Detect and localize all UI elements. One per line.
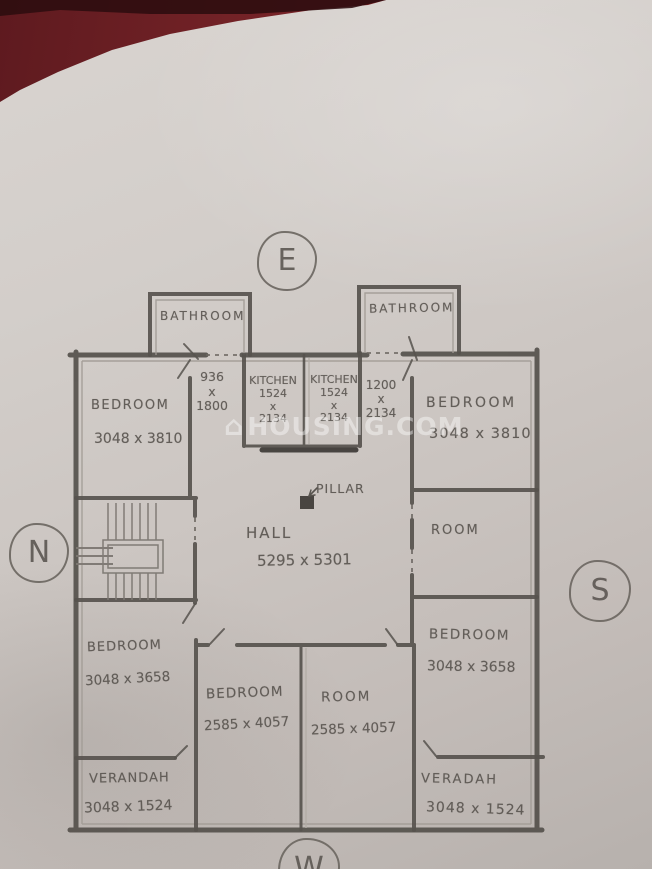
compass-east-letter: E: [278, 246, 297, 276]
passage-right-dims: 1200 x 2134: [358, 379, 404, 421]
room-label-bedroom-bottom-left: BEDROOM: [87, 638, 162, 656]
room-label-bathroom-right: BATHROOM: [369, 300, 455, 315]
kitchen-right-depth: 2134: [320, 412, 348, 425]
kitchen-left-width: 1524: [259, 388, 287, 401]
pillar-symbol: [300, 488, 317, 509]
kitchen-right-width: 1524: [320, 387, 348, 400]
room-label-bedroom-top-left: BEDROOM: [91, 398, 169, 413]
kitchen-left-name: KITCHEN: [249, 375, 297, 388]
room-dims-verandah-left: 3048 x 1524: [84, 797, 173, 816]
room-label-verandah-right: VERADAH: [421, 771, 498, 787]
room-dims-bedroom-top-left: 3048 x 3810: [94, 431, 182, 447]
room-dims-verandah-right: 3048 x 1524: [426, 799, 526, 818]
room-label-kitchen-left: KITCHEN 1524 x 2134: [243, 375, 303, 426]
room-dims-bedroom-top-right: 3048 x 3810: [429, 426, 532, 442]
room-dims-bedroom-bottom-right: 3048 x 3658: [427, 658, 516, 676]
room-label-bedroom-bottom-right: BEDROOM: [429, 626, 510, 643]
room-label-room-middle-right: ROOM: [431, 523, 480, 538]
compass-west-letter: W: [294, 854, 324, 869]
room-label-bedroom-bottom-center: BEDROOM: [206, 684, 284, 703]
passage-right-depth: 2134: [366, 407, 397, 421]
floorplan-photo: E N S W BATHROOM BATHROOM BEDROOM 3048 x…: [0, 0, 652, 869]
room-dims-hall: 5295 x 5301: [257, 550, 352, 570]
room-label-verandah-left: VERANDAH: [89, 770, 170, 786]
room-label-bedroom-top-right: BEDROOM: [426, 395, 517, 411]
room-dims-room-bottom-center: 2585 x 4057: [311, 720, 397, 739]
passage-left-dims: 936 x 1800: [188, 370, 236, 414]
kitchen-right-name: KITCHEN: [310, 374, 358, 387]
passage-left-depth: 1800: [196, 399, 228, 414]
passage-right-times: x: [377, 393, 384, 407]
room-label-room-bottom-center: ROOM: [321, 689, 372, 706]
room-label-hall: HALL: [246, 524, 292, 542]
passage-left-width: 936: [200, 370, 224, 385]
compass-south-letter: S: [590, 576, 609, 606]
passage-left-times: x: [208, 385, 215, 400]
room-label-kitchen-right: KITCHEN 1524 x 2134: [307, 374, 361, 425]
compass-north-letter: N: [28, 538, 50, 568]
kitchen-left-depth: 2134: [259, 413, 287, 426]
room-label-bathroom-left: BATHROOM: [160, 309, 245, 323]
passage-right-width: 1200: [366, 379, 397, 393]
pillar-label: PILLAR: [316, 481, 365, 496]
staircase: [76, 503, 163, 600]
